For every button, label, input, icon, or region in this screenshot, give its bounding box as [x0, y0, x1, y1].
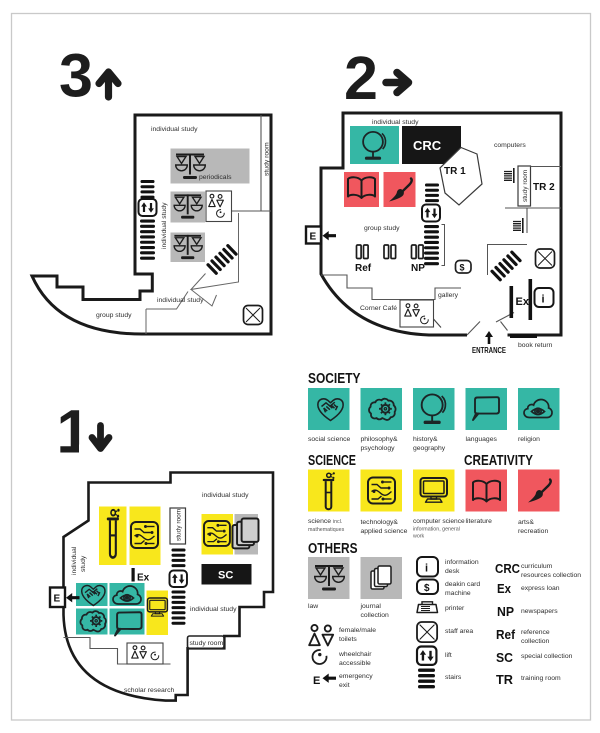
svg-text:technology&: technology& [361, 519, 399, 526]
svg-text:history&: history& [413, 436, 438, 443]
svg-text:group study: group study [364, 225, 400, 232]
svg-text:periodicals: periodicals [199, 174, 232, 181]
svg-text:gallery: gallery [438, 292, 459, 299]
svg-text:Corner Café: Corner Café [360, 305, 397, 312]
svg-text:mathematiques: mathematiques [308, 527, 345, 533]
svg-text:computers: computers [494, 142, 526, 149]
svg-text:Ex: Ex [497, 581, 512, 596]
svg-text:arts&: arts& [518, 519, 534, 526]
svg-text:individual study: individual study [372, 119, 419, 126]
svg-text:training room: training room [521, 675, 561, 682]
svg-text:wheelchair: wheelchair [338, 651, 372, 658]
svg-text:languages: languages [466, 436, 498, 443]
svg-text:CRC: CRC [495, 561, 521, 576]
svg-text:resources collection: resources collection [521, 572, 581, 579]
svg-text:staff area: staff area [445, 628, 473, 635]
svg-text:applied science: applied science [361, 528, 408, 535]
svg-text:journal: journal [360, 603, 382, 610]
svg-text:collection: collection [361, 612, 390, 619]
svg-text:stairs: stairs [445, 674, 462, 681]
svg-text:Ref: Ref [496, 627, 516, 642]
svg-text:individual study: individual study [157, 297, 204, 304]
svg-text:philosophy&: philosophy& [361, 436, 398, 443]
svg-text:CRC: CRC [413, 138, 442, 153]
svg-text:newspapers: newspapers [521, 608, 558, 615]
svg-text:Ex: Ex [137, 573, 150, 584]
svg-text:special collection: special collection [521, 653, 573, 660]
svg-text:individual study: individual study [151, 126, 198, 133]
svg-text:CREATIVITY: CREATIVITY [464, 452, 533, 469]
svg-text:study: study [80, 555, 87, 572]
svg-text:i: i [542, 294, 545, 306]
svg-text:reference: reference [521, 629, 550, 636]
svg-text:recreation: recreation [518, 528, 548, 535]
svg-text:study room: study room [176, 509, 183, 541]
svg-text:information: information [445, 559, 479, 566]
svg-text:SOCIETY: SOCIETY [308, 370, 361, 387]
svg-text:science incl.: science incl. [308, 518, 342, 525]
svg-text:curriculum: curriculum [521, 563, 553, 570]
svg-text:emergency: emergency [339, 673, 373, 680]
svg-text:SC: SC [218, 570, 233, 582]
svg-text:TR: TR [496, 672, 514, 687]
svg-text:information, general: information, general [413, 527, 460, 533]
svg-text:individual study: individual study [190, 606, 237, 613]
svg-text:i: i [425, 563, 428, 575]
svg-text:accessible: accessible [339, 660, 371, 667]
svg-text:2: 2 [344, 44, 378, 112]
svg-text:study room: study room [522, 170, 529, 202]
svg-text:$: $ [460, 263, 465, 273]
svg-text:work: work [413, 534, 425, 540]
svg-text:NP: NP [411, 263, 425, 274]
svg-text:study room: study room [264, 142, 271, 176]
svg-text:Ex: Ex [516, 296, 530, 308]
svg-text:individual: individual [71, 546, 78, 575]
svg-text:individual study: individual study [202, 492, 249, 499]
svg-text:social science: social science [308, 436, 351, 443]
svg-text:TR 1: TR 1 [444, 166, 466, 177]
svg-text:psychology: psychology [361, 445, 396, 452]
svg-text:express loan: express loan [521, 585, 560, 592]
svg-text:female/male: female/male [339, 627, 376, 634]
svg-text:exit: exit [339, 682, 350, 689]
svg-text:Ref: Ref [355, 263, 372, 274]
svg-text:law: law [308, 603, 318, 610]
svg-text:lift: lift [445, 652, 452, 659]
svg-text:ENTRANCE: ENTRANCE [472, 346, 507, 355]
svg-text:toilets: toilets [339, 636, 357, 643]
svg-text:collection: collection [521, 638, 550, 645]
svg-text:deakin card: deakin card [445, 581, 480, 588]
svg-text:E: E [310, 232, 317, 243]
svg-text:literature: literature [466, 518, 493, 525]
svg-text:NP: NP [497, 604, 514, 619]
svg-text:individual study: individual study [161, 202, 168, 249]
svg-text:SCIENCE: SCIENCE [308, 452, 356, 469]
svg-text:study room: study room [190, 640, 224, 647]
svg-text:E: E [313, 675, 320, 687]
svg-text:book return: book return [518, 342, 553, 349]
svg-text:E: E [54, 594, 61, 605]
svg-text:desk: desk [445, 568, 460, 575]
svg-text:printer: printer [445, 605, 465, 612]
svg-text:geography: geography [413, 445, 446, 452]
svg-text:scholar research: scholar research [124, 687, 174, 694]
svg-text:group study: group study [96, 312, 132, 319]
svg-text:machine: machine [445, 590, 471, 597]
svg-text:1: 1 [57, 398, 91, 466]
svg-text:$: $ [424, 583, 430, 594]
svg-text:computer science: computer science [413, 518, 465, 525]
svg-text:religion: religion [518, 436, 540, 443]
svg-text:OTHERS: OTHERS [308, 540, 358, 557]
svg-text:SC: SC [496, 650, 514, 665]
svg-text:3: 3 [59, 42, 93, 110]
svg-text:TR 2: TR 2 [533, 182, 555, 193]
